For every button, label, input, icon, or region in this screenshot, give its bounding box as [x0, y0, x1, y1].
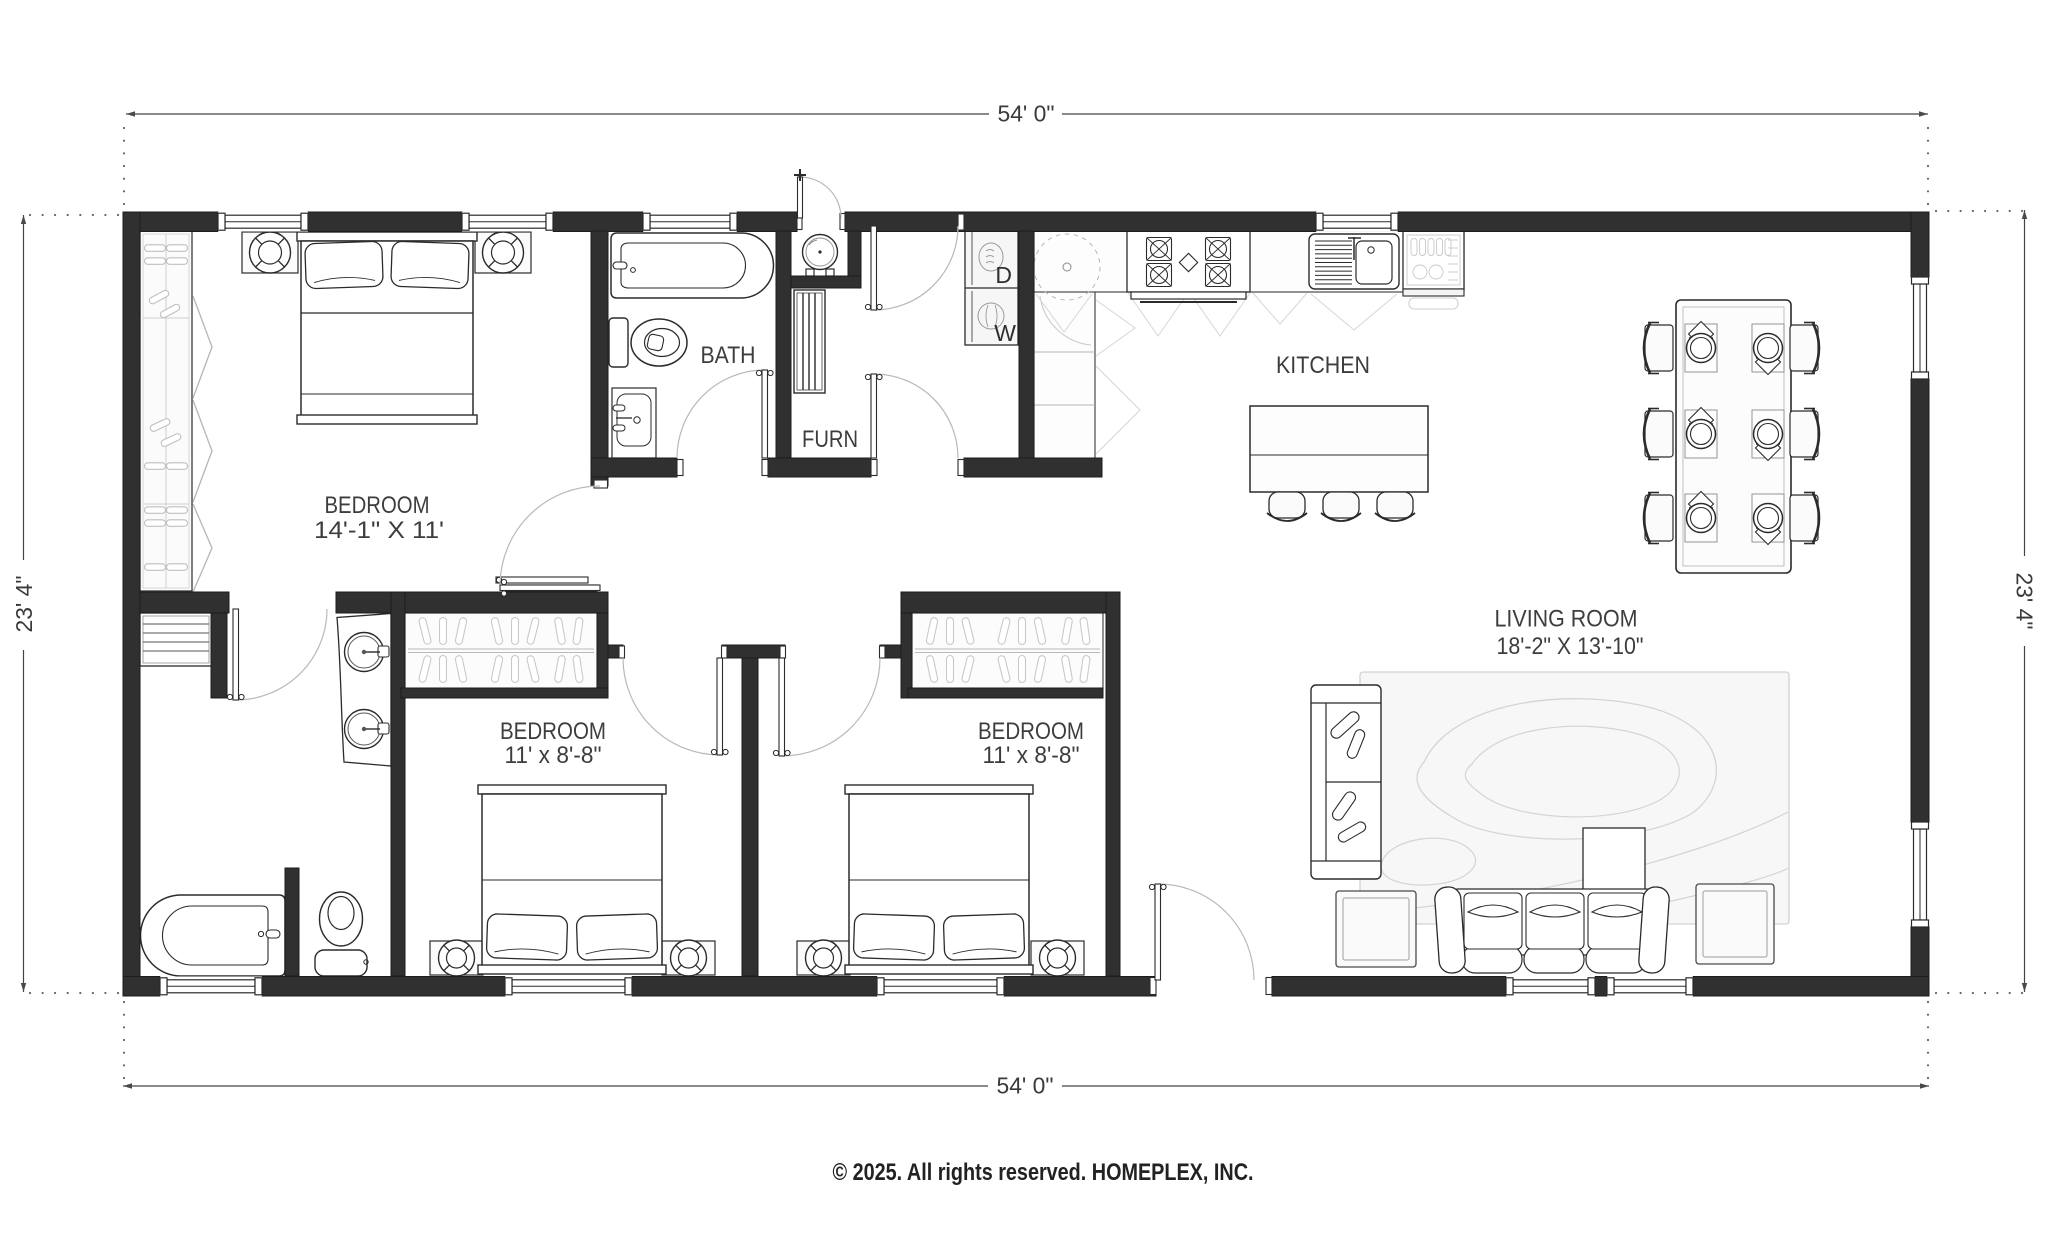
svg-text:D: D: [995, 262, 1012, 288]
svg-text:54' 0": 54' 0": [998, 101, 1055, 127]
svg-text:BEDROOM: BEDROOM: [500, 718, 606, 745]
svg-text:14'-1" X 11': 14'-1" X 11': [314, 517, 444, 544]
svg-text:BATH: BATH: [701, 342, 756, 369]
svg-text:© 2025. All rights reserved. H: © 2025. All rights reserved. HOMEPLEX, I…: [833, 1159, 1254, 1186]
svg-text:23' 4": 23' 4": [11, 576, 37, 633]
svg-text:W: W: [994, 320, 1016, 346]
svg-text:KITCHEN: KITCHEN: [1276, 352, 1370, 379]
svg-text:LIVING ROOM: LIVING ROOM: [1495, 606, 1638, 633]
svg-text:11' x 8'-8": 11' x 8'-8": [983, 742, 1080, 769]
svg-text:18'-2" X 13'-10": 18'-2" X 13'-10": [1497, 633, 1644, 660]
svg-text:FURN: FURN: [802, 426, 858, 453]
svg-text:54' 0": 54' 0": [997, 1073, 1054, 1099]
svg-text:BEDROOM: BEDROOM: [978, 718, 1084, 745]
svg-text:23' 4": 23' 4": [2012, 573, 2038, 630]
svg-text:BEDROOM: BEDROOM: [325, 492, 430, 519]
svg-text:11' x 8'-8": 11' x 8'-8": [505, 742, 602, 769]
